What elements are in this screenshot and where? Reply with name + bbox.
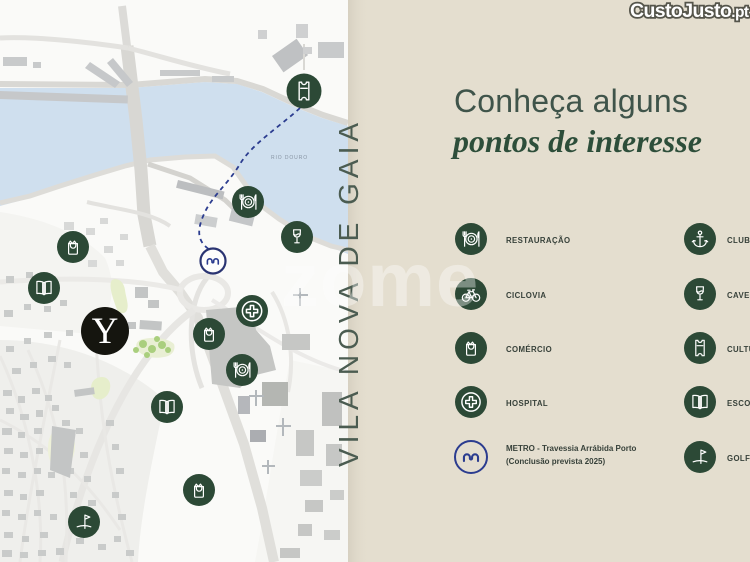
svg-text:METRO - Travessia Arrábida Por: METRO - Travessia Arrábida Porto (506, 444, 637, 453)
svg-text:pontos de interesse: pontos de interesse (450, 123, 702, 159)
svg-text:ESCOLAS: ESCOLAS (727, 399, 750, 408)
svg-text:HOSPITAL: HOSPITAL (506, 399, 548, 408)
svg-text:CICLOVIA: CICLOVIA (506, 291, 546, 300)
svg-text:CAVES: CAVES (727, 291, 750, 300)
svg-text:zome: zome (281, 238, 479, 323)
svg-text:GOLFE: GOLFE (727, 454, 750, 463)
svg-text:COMÉRCIO: COMÉRCIO (506, 345, 552, 354)
svg-text:CLUBE: CLUBE (727, 236, 750, 245)
svg-text:CustoJusto.pt: CustoJusto.pt (630, 0, 749, 22)
svg-text:CULTURA: CULTURA (727, 345, 750, 354)
svg-text:RESTAURAÇÃO: RESTAURAÇÃO (506, 236, 570, 245)
svg-text:RIO DOURO: RIO DOURO (271, 155, 308, 161)
svg-text:(Conclusão prevista 2025): (Conclusão prevista 2025) (506, 457, 605, 466)
svg-text:Y: Y (92, 311, 119, 352)
svg-text:Conheça alguns: Conheça alguns (454, 83, 688, 119)
